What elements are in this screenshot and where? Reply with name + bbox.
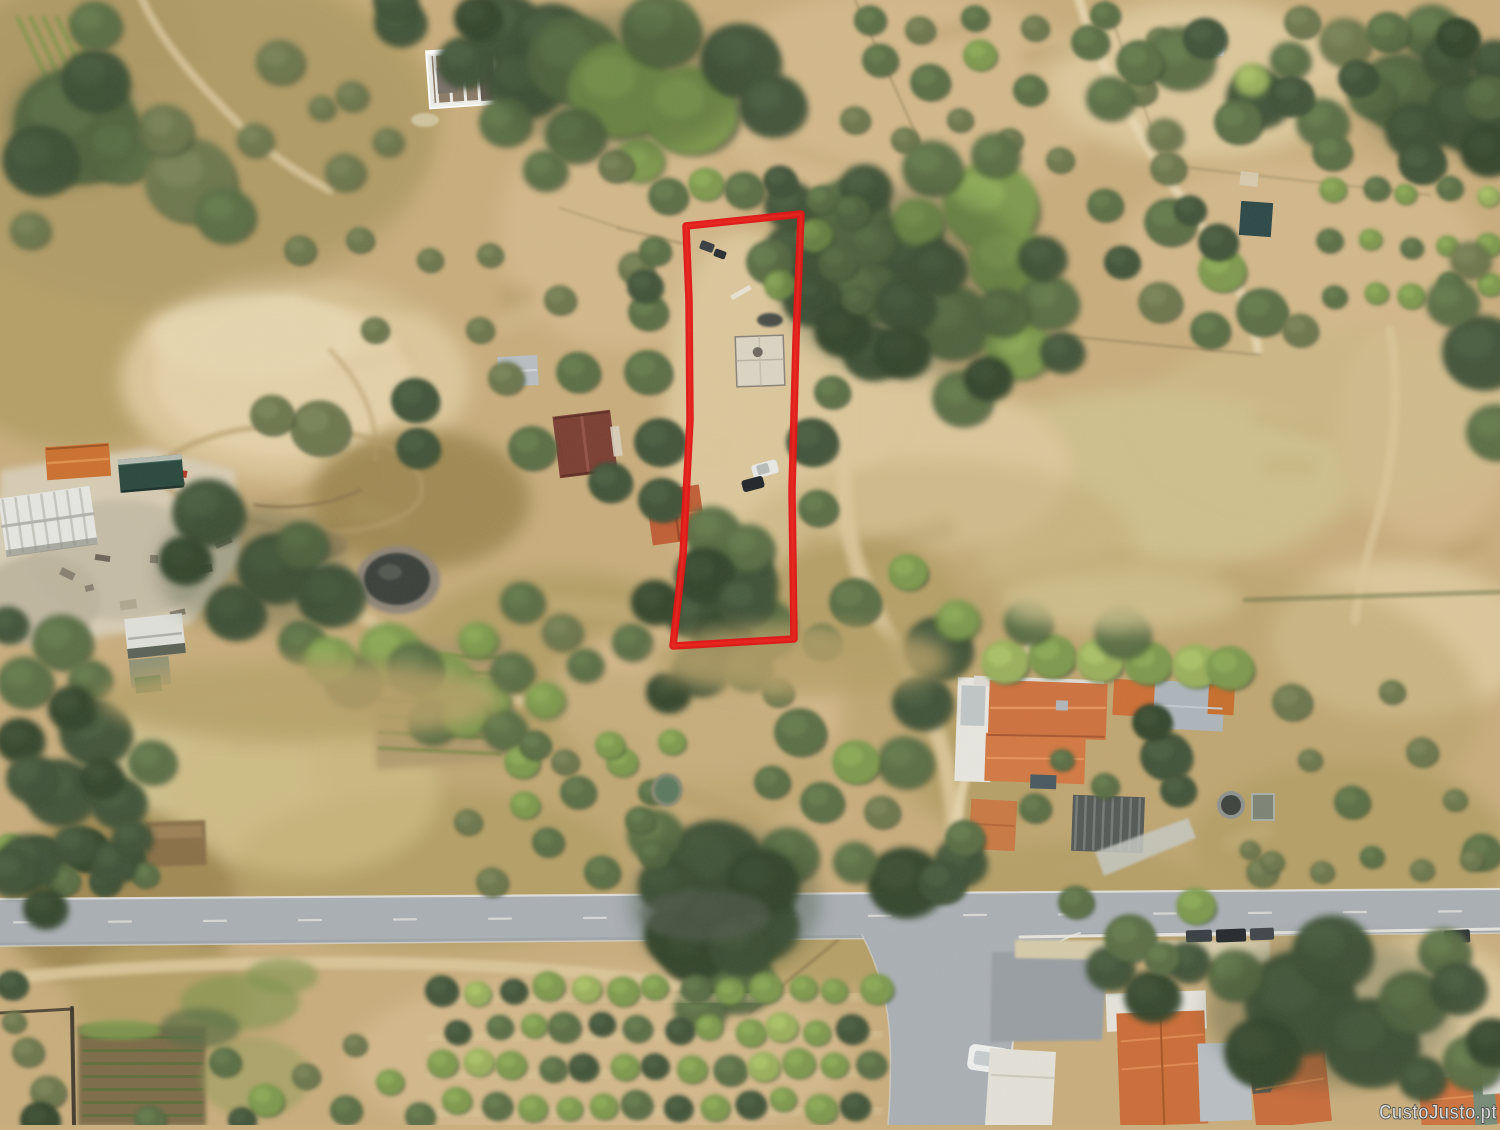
svg-text:CustoJusto.pt: CustoJusto.pt <box>1379 1101 1497 1124</box>
